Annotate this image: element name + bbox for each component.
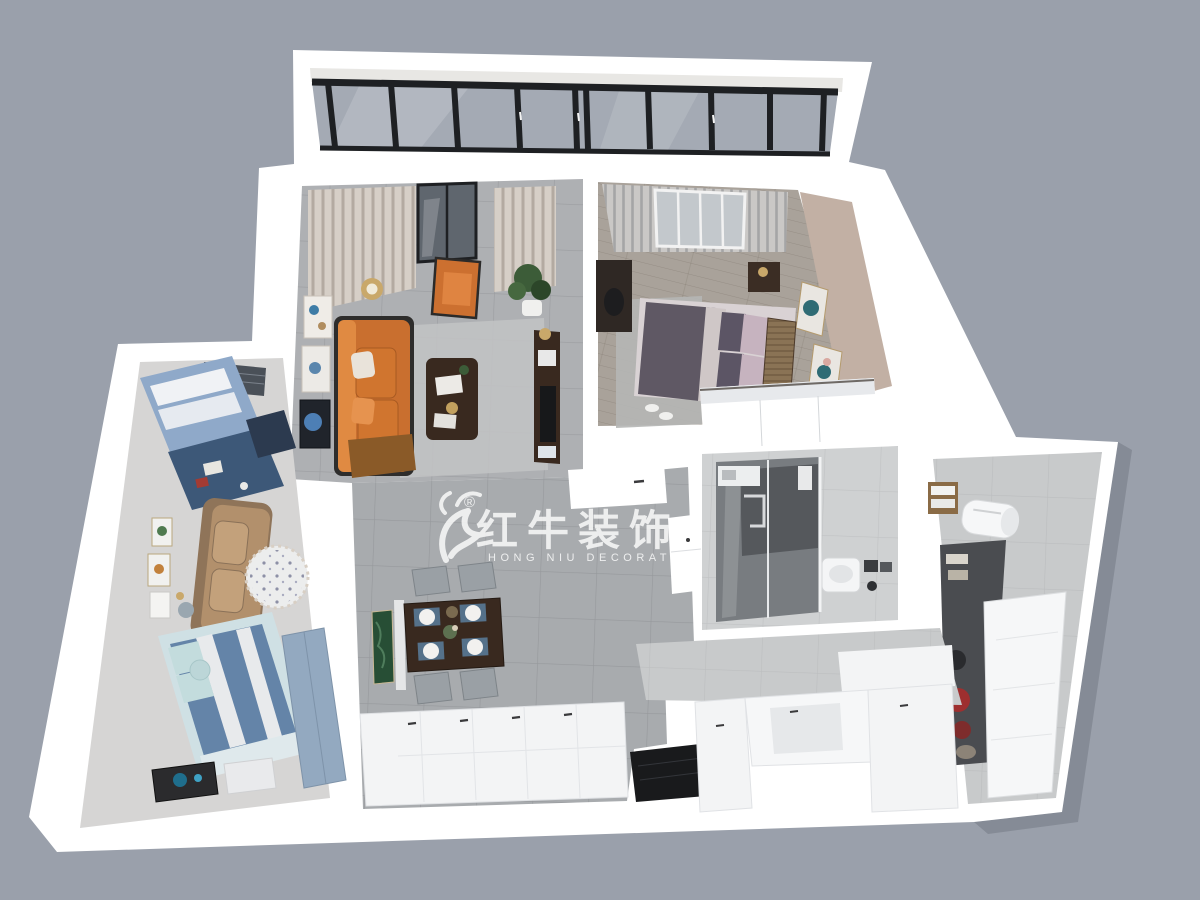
tv-console: [534, 328, 560, 464]
leather-cushion-2: [208, 568, 246, 613]
floor-frame-art-2: [194, 774, 202, 782]
sofa-pillow-white: [350, 351, 375, 380]
small-frame-3: [150, 592, 170, 618]
master-bedroom: [596, 182, 892, 450]
watermark-title: 红牛装饰: [476, 507, 680, 554]
round-rug: [246, 546, 308, 608]
table-gold-bowl: [446, 402, 458, 414]
sideboard-cabinets: [360, 702, 628, 806]
leather-cushion-1: [211, 520, 249, 565]
plate-1: [419, 609, 435, 625]
dining-green-art: [372, 610, 394, 684]
pink-art-motif: [823, 358, 831, 366]
coffee-table: [426, 358, 478, 440]
art-3-motif: [304, 413, 322, 431]
nightstand-lamp: [758, 267, 768, 277]
art-frame-1: [304, 296, 332, 338]
slipper-2: [659, 412, 673, 420]
balcony: [310, 68, 843, 154]
teddy-bear: [178, 602, 194, 618]
art-1-motif: [309, 305, 319, 315]
desk-chair: [604, 288, 624, 316]
shower-head-unit: [798, 466, 812, 490]
centerpiece-bloom: [452, 625, 458, 631]
dining-chair-2: [458, 562, 496, 592]
plate-2: [465, 605, 481, 621]
textured-pillow: [190, 660, 210, 680]
gold-side-table-top: [367, 284, 378, 295]
dining-table: [404, 598, 504, 672]
gold-floor-lamp: [539, 328, 551, 340]
orange-sofa: [334, 316, 416, 478]
plant-foliage-3: [508, 282, 526, 300]
orange-armchair: [432, 258, 480, 318]
utility-door: [984, 592, 1066, 798]
kitchen-cabinet-right: [868, 684, 958, 812]
sofa-pillow-orange: [351, 397, 376, 425]
nightstand: [748, 262, 780, 292]
watermark-subtitle: HONG NIU DECORATION: [488, 552, 704, 564]
armchair-seat: [442, 272, 472, 306]
kitchen-sink: [770, 703, 843, 754]
floor-frame-art: [173, 773, 187, 787]
art-2-motif: [309, 362, 321, 374]
master-closet: [700, 378, 878, 450]
dining-chair-4: [460, 668, 498, 700]
pillow-pink-1: [740, 314, 768, 356]
console-books-top: [538, 350, 556, 366]
plate-4: [467, 639, 483, 655]
dining-chair-3: [414, 672, 452, 704]
sink-basin: [829, 565, 853, 583]
hall-cabinet-handle: [634, 481, 644, 482]
plate-3: [423, 643, 439, 659]
bathroom: [702, 446, 898, 630]
small-frame-motif-1: [157, 526, 167, 536]
kitchen-cabinet-left: [695, 698, 752, 812]
towel-rack: [928, 482, 958, 514]
table-books: [433, 413, 456, 429]
small-gold-lamp: [176, 592, 184, 600]
teal-art-motif-1: [803, 300, 819, 316]
sideboard-body: [360, 702, 628, 806]
registered-mark: ®: [464, 494, 475, 511]
hall-dresser-handle: [686, 538, 690, 542]
bucket: [956, 745, 976, 759]
small-frame-motif-2: [154, 564, 164, 574]
dining-chair-1: [412, 566, 450, 596]
floorplan-render: ® 红牛装饰 HONG NIU DECORATION: [0, 0, 1200, 900]
bedroom2-wall-frames: [148, 518, 172, 618]
table-plant-sprig: [459, 365, 469, 375]
entry-mat: [630, 744, 706, 802]
tv-screen: [540, 386, 556, 442]
living-wall-art: [300, 296, 332, 448]
centerpiece-basket: [446, 606, 458, 618]
plant-foliage-2: [531, 280, 551, 300]
red-canister-2: [953, 721, 971, 739]
hall-cabinet-top: [568, 464, 667, 509]
floor-frame-light: [224, 758, 276, 794]
console-books-bottom: [538, 446, 556, 458]
table-papers: [435, 374, 463, 395]
plant-pot: [522, 300, 542, 316]
art-1-motif-2: [318, 322, 326, 330]
shelf-items: [722, 470, 736, 480]
living-room: [290, 179, 583, 483]
floorplan-svg: ® 红牛装饰 HONG NIU DECORATION: [0, 0, 1200, 900]
slipper-1: [645, 404, 659, 412]
desk-mug: [240, 482, 248, 490]
teal-art-motif-2: [817, 365, 831, 379]
